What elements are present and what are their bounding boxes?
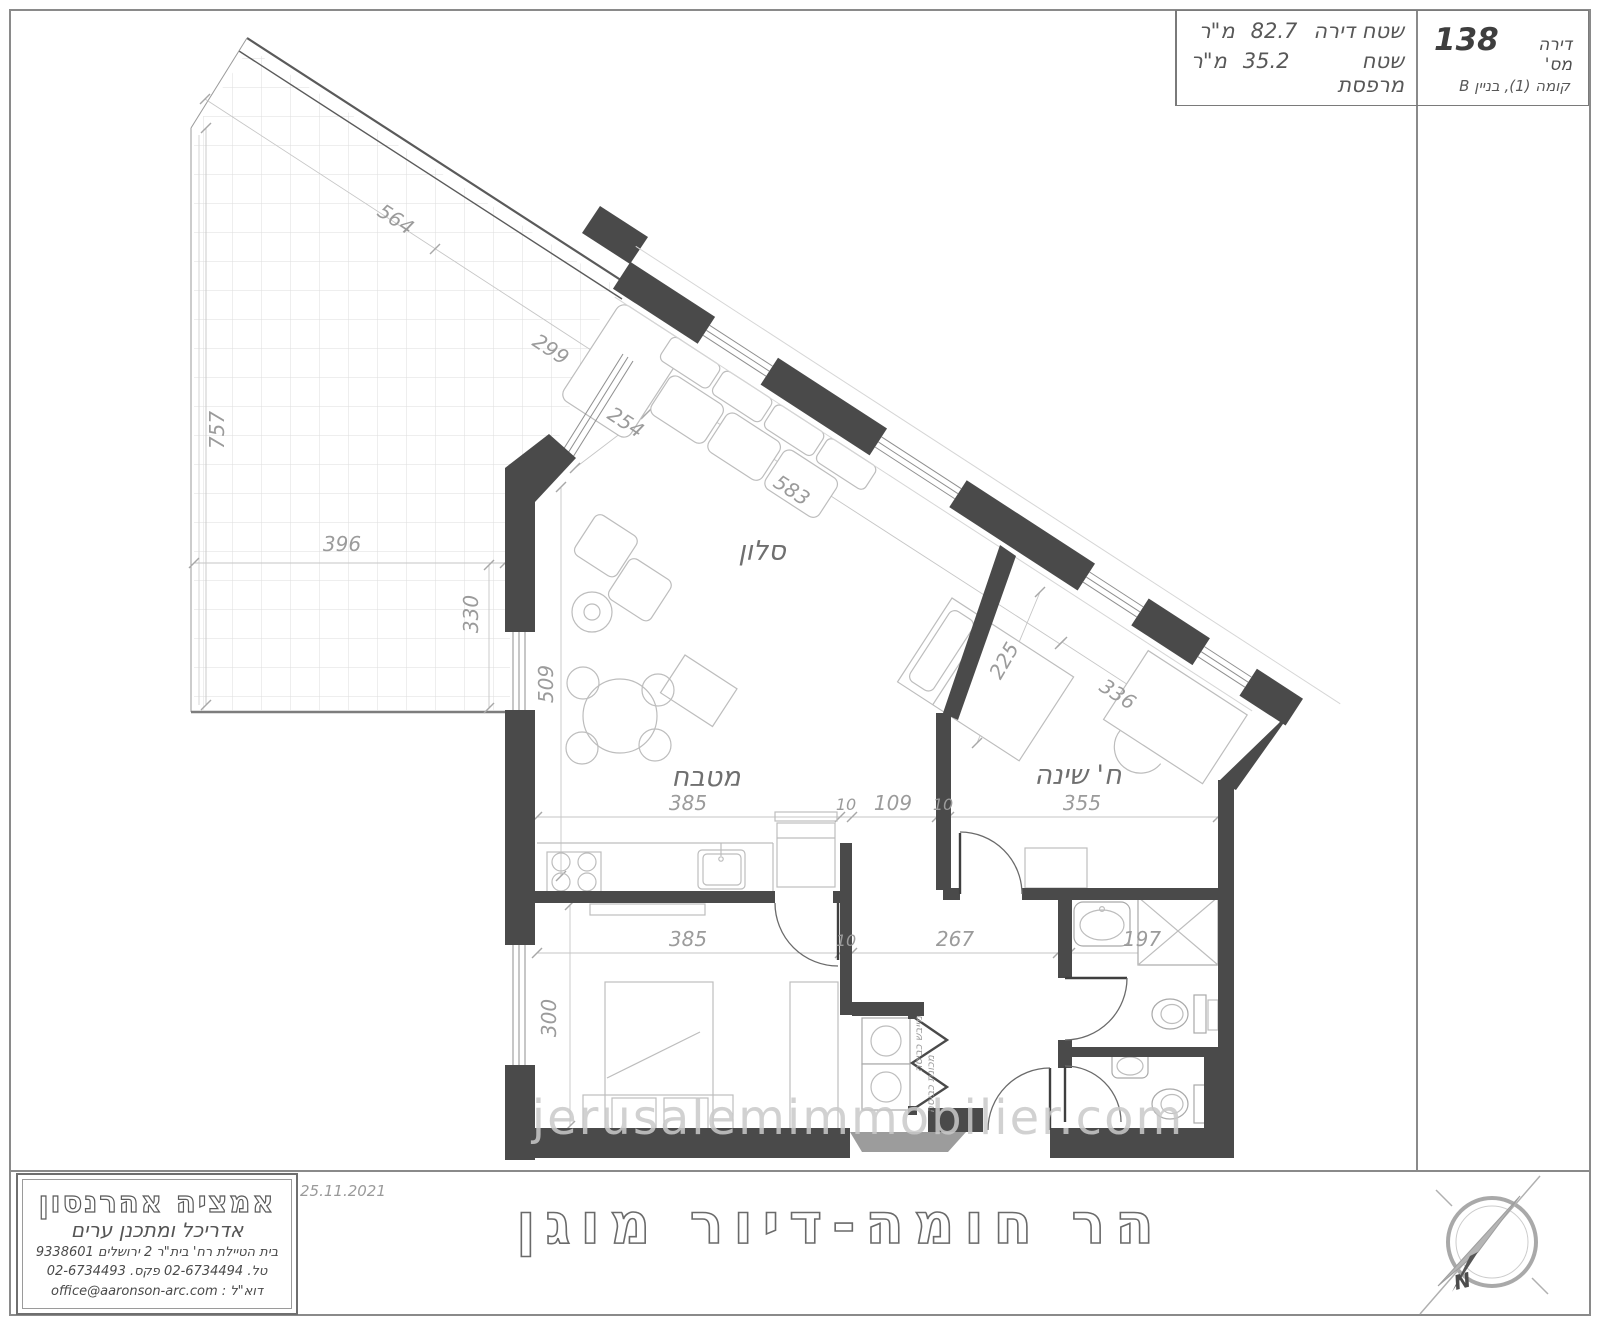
dining-set xyxy=(566,667,674,764)
north-compass: N xyxy=(1420,1176,1548,1314)
door-bedroom2 xyxy=(775,903,838,966)
architect-phone-fax: טל. 02-6734494 פקס. 02-6734493 xyxy=(47,1263,268,1281)
north-label: N xyxy=(1451,1267,1473,1294)
watermark: jerusalemimmobilier.com xyxy=(531,1090,1184,1146)
area-apartment-value: 82.7 xyxy=(1251,19,1298,43)
dim-bathroom-width: 197 xyxy=(1123,927,1161,951)
dim-kitchen-width: 385 xyxy=(669,791,707,815)
architect-title: אדריכל ומתכנן ערים xyxy=(71,1219,243,1242)
area-apartment-label: שטח דירה xyxy=(1313,19,1404,43)
shelf xyxy=(1208,1000,1218,1030)
room-label-bedroom: ח' שינה xyxy=(1034,760,1122,791)
dim-hall-opening: 109 xyxy=(874,791,912,815)
compass-needle xyxy=(1438,1196,1520,1286)
dim-kitchen-depth: 509 xyxy=(534,665,558,703)
dim-bedroom2-depth: 300 xyxy=(537,999,561,1037)
email-address: office@aaronson-arc.com xyxy=(51,1284,218,1299)
dim-wall-2: 10 xyxy=(933,795,953,814)
apartment-id-cell: דירה מס' 138 קומה (1), בניין B xyxy=(1418,11,1588,105)
area-unit: מ"ר xyxy=(1199,19,1235,43)
room-label-living: סלון xyxy=(738,536,787,567)
architect-address: בית הטיילת רח' בית"ר 2 ירושלים 9338601 xyxy=(36,1244,278,1262)
room-label-kitchen: מטבח xyxy=(671,762,741,793)
apartment-label: דירה מס' xyxy=(1511,35,1572,75)
kitchen-counter xyxy=(537,812,837,892)
dim-bedroom2-width: 385 xyxy=(669,927,707,951)
area-balcony-value: 35.2 xyxy=(1243,49,1290,73)
coffee-table xyxy=(660,655,737,727)
dresser xyxy=(590,904,705,915)
dim-closet-wall: 10 xyxy=(836,931,856,950)
area-balcony-label: שטח מרפסת xyxy=(1306,49,1404,97)
dim-bedroom-width: 355 xyxy=(1063,791,1101,815)
door-bedroom xyxy=(960,832,1022,894)
area-apartment-line: שטח דירה 82.7 מ"ר xyxy=(1191,19,1404,43)
window-west-2 xyxy=(513,945,525,1065)
dim-terrace-width: 396 xyxy=(323,532,361,556)
apartment-number-line: דירה מס' 138 xyxy=(1434,22,1572,75)
area-unit-2: מ"ר xyxy=(1191,49,1227,73)
architect-block: אמציה אהרנסון אדריכל ומתכנן ערים בית הטי… xyxy=(16,1173,298,1315)
title-block: שטח דירה 82.7 מ"ר שטח מרפסת 35.2 מ"ר דיר… xyxy=(1175,10,1589,106)
plan-sheet: 564 299 757 396 330 254 583 509 385 10 1… xyxy=(0,0,1600,1328)
architect-name: אמציה אהרנסון xyxy=(39,1188,276,1217)
dim-wall-1: 10 xyxy=(836,795,856,814)
area-balcony-line: שטח מרפסת 35.2 מ"ר xyxy=(1191,49,1404,97)
window-west-1 xyxy=(513,632,525,710)
parapet-end-pillar xyxy=(582,206,648,264)
terrace-tiles xyxy=(194,48,612,710)
floor-building-line: קומה (1), בניין B xyxy=(1434,77,1572,95)
label-dryer: מייבש כביסה xyxy=(913,1015,925,1072)
toilet-tank xyxy=(1194,995,1206,1033)
door-bathroom-1 xyxy=(1065,978,1127,1040)
email-label: דוא"ל : xyxy=(222,1284,263,1299)
floor-lamp xyxy=(572,592,612,632)
fridge xyxy=(777,823,835,887)
project-title: הר חומה-דיור מוגן xyxy=(300,1192,1380,1257)
architect-block-inner: אמציה אהרנסון אדריכל ומתכנן ערים בית הטי… xyxy=(22,1179,292,1309)
architect-email-line: דוא"ל : office@aaronson-arc.com xyxy=(51,1283,263,1301)
dim-hall-width: 267 xyxy=(936,927,974,951)
dryer xyxy=(862,1018,910,1064)
west-wall xyxy=(505,482,535,1160)
dim-terrace-side: 330 xyxy=(459,595,483,633)
floor-plan-drawing: 564 299 757 396 330 254 583 509 385 10 1… xyxy=(0,0,1600,1328)
dim-terrace-left: 757 xyxy=(205,411,229,449)
apartment-number: 138 xyxy=(1434,22,1499,58)
wardrobe xyxy=(1025,848,1087,888)
area-summary: שטח דירה 82.7 מ"ר שטח מרפסת 35.2 מ"ר xyxy=(1176,11,1418,105)
stove xyxy=(547,852,601,892)
east-wall xyxy=(1204,700,1300,1158)
